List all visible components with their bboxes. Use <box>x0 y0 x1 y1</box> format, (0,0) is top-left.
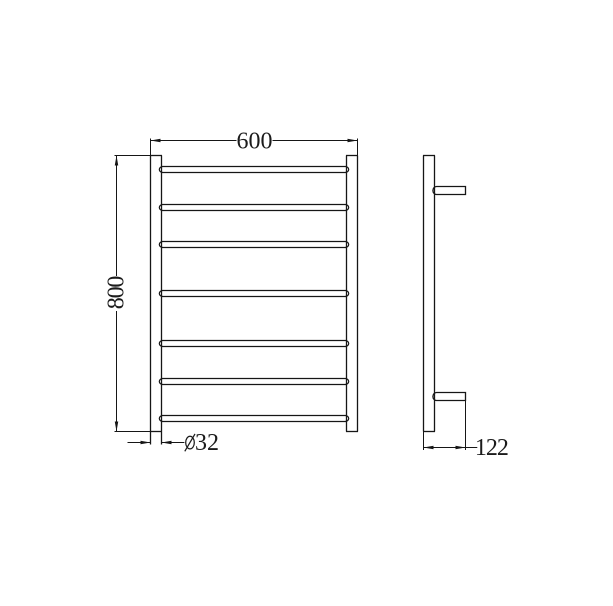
svg-text:32: 32 <box>195 430 219 456</box>
svg-text:800: 800 <box>103 276 129 310</box>
svg-text:600: 600 <box>237 129 273 155</box>
svg-text:122: 122 <box>475 435 508 461</box>
